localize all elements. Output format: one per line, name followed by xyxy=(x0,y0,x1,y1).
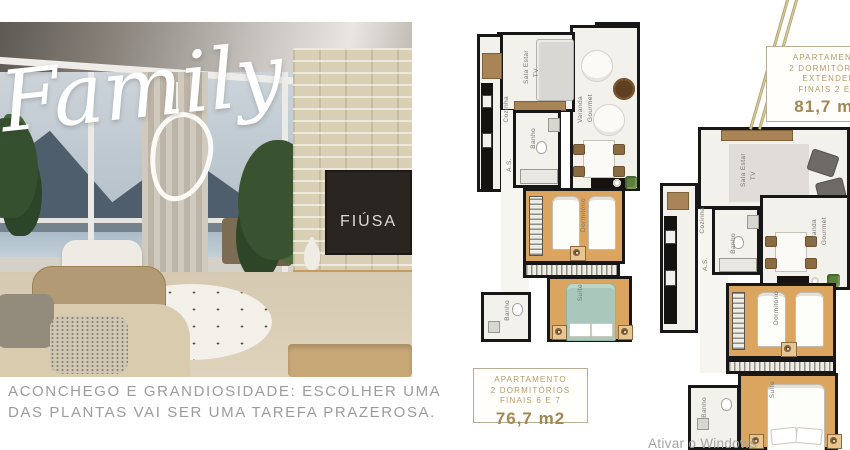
sink xyxy=(548,118,560,132)
dining-chair xyxy=(613,144,625,155)
label-as: A.S. xyxy=(506,158,514,172)
lamp xyxy=(573,249,580,256)
label-sala-estar: Sala Estar xyxy=(740,153,748,187)
single-bed xyxy=(795,292,824,347)
pillow xyxy=(591,323,613,337)
label-dormitorio: Dormitório xyxy=(580,198,588,232)
toilet xyxy=(512,303,523,316)
shower xyxy=(520,169,558,184)
label-varanda: Varanda xyxy=(577,96,585,123)
label-banho-2: Banho xyxy=(504,300,512,321)
label-dormitorio: Dormitório xyxy=(773,291,781,325)
sofa-pillow xyxy=(50,316,128,374)
pillow xyxy=(795,427,822,445)
windows-activation-watermark: Ativar o Windows xyxy=(648,436,757,450)
single-bed xyxy=(757,292,786,347)
dining-chair xyxy=(573,166,585,177)
sink xyxy=(488,321,500,333)
pillow xyxy=(569,323,591,337)
room-suite xyxy=(547,276,632,342)
label-banho: Banho xyxy=(530,128,538,149)
dining-chair xyxy=(765,236,777,247)
wardrobe xyxy=(732,292,745,350)
plant xyxy=(625,176,637,189)
plan-info-line: APARTAMENTO xyxy=(767,53,850,64)
sink xyxy=(747,215,759,229)
sofa xyxy=(536,39,574,101)
appliance xyxy=(665,230,676,244)
label-gourmet: Gourmet xyxy=(587,94,595,122)
dining-chair xyxy=(613,166,625,177)
plan-info-line: 2 DORMITÓRIOS xyxy=(474,386,587,397)
label-as: A.S. xyxy=(702,257,710,271)
sink xyxy=(697,418,709,430)
wood-bench xyxy=(288,344,412,377)
lamp xyxy=(621,328,628,335)
plan-area-value: 76,7 m2 xyxy=(474,409,587,429)
lounge-chair xyxy=(593,104,625,136)
room-dormitorio xyxy=(523,188,625,264)
armchair xyxy=(806,148,839,178)
appliance xyxy=(482,133,492,148)
tv-brand-label: FIÚSA xyxy=(340,213,397,231)
wardrobe xyxy=(529,196,543,256)
plan-info-line: 2 DORMITÓRIOS xyxy=(767,64,850,75)
label-suite: Suíte xyxy=(577,284,585,301)
round-table xyxy=(613,78,635,100)
dining-table xyxy=(583,140,615,178)
lamp xyxy=(830,437,837,444)
dining-chair xyxy=(573,144,585,155)
label-sala-estar: Sala Estar xyxy=(523,50,531,84)
plan-info-box-small: APARTAMENTO 2 DORMITÓRIOS FINAIS 6 E 7 7… xyxy=(473,368,588,423)
label-cozinha: Cozinha xyxy=(503,96,511,123)
tv-rack xyxy=(721,130,793,141)
caption-line-2: DAS PLANTAS VAI SER UMA TAREFA PRAZEROSA… xyxy=(8,404,436,421)
label-sala-tv: TV xyxy=(750,171,758,180)
floorplan-large: Sala Estar TV Cozinha A.S. Banho Varanda… xyxy=(660,123,850,450)
tv-panel: FIÚSA xyxy=(325,170,412,255)
plan-area-value: 81,7 m2 xyxy=(767,97,850,117)
label-suite: Suíte xyxy=(769,381,777,398)
dining-table xyxy=(775,232,807,272)
room-dormitorio xyxy=(726,283,836,359)
plan-info-line: APARTAMENTO xyxy=(474,375,587,386)
dining-chair xyxy=(805,258,817,269)
caption-line-1: ACONCHEGO E GRANDIOSIDADE: ESCOLHER UMA xyxy=(8,383,441,400)
single-bed xyxy=(552,196,580,250)
single-bed xyxy=(588,196,616,250)
room-varanda-gourmet xyxy=(760,195,850,290)
lamp xyxy=(555,328,562,335)
dining-chair xyxy=(765,258,777,269)
toilet xyxy=(721,398,732,411)
plan-info-box-large: APARTAMENTO 2 DORMITÓRIOS EXTENDED FINAI… xyxy=(766,46,850,122)
label-banho: Banho xyxy=(730,233,738,254)
kitchen-cabinet xyxy=(482,53,502,79)
room-cozinha-as xyxy=(660,183,698,333)
brochure-page: FIÚSA Family ACONCHEGO E GRANDIOSIDADE: … xyxy=(0,0,850,450)
kitchen-cabinet xyxy=(667,192,689,210)
label-sala-tv: TV xyxy=(533,68,541,77)
appliance xyxy=(482,95,492,108)
lamp xyxy=(784,345,791,352)
plan-info-line: EXTENDED xyxy=(767,74,850,85)
label-cozinha: Cozinha xyxy=(699,207,707,234)
buddha-statue xyxy=(304,242,320,270)
plan-info-line: FINAIS 6 E 7 xyxy=(474,396,587,407)
pendant-light xyxy=(613,179,621,187)
hero-photo: FIÚSA Family xyxy=(0,22,412,377)
sofa-pillow xyxy=(0,294,54,348)
wardrobe-strip xyxy=(726,359,836,374)
room-cozinha-as xyxy=(477,34,503,192)
label-gourmet: Gourmet xyxy=(821,217,829,245)
lounge-chair xyxy=(581,50,613,82)
floorplan-small: Sala Estar TV Cozinha A.S. Banho Varanda… xyxy=(477,22,640,345)
plan-info-line: FINAIS 2 E 3 xyxy=(767,85,850,96)
label-banho-2: Banho xyxy=(701,397,709,418)
room-banho-1 xyxy=(513,110,561,188)
pillow xyxy=(770,427,798,446)
label-varanda: Varanda xyxy=(811,219,819,246)
shower xyxy=(719,258,757,272)
appliance xyxy=(665,270,676,286)
